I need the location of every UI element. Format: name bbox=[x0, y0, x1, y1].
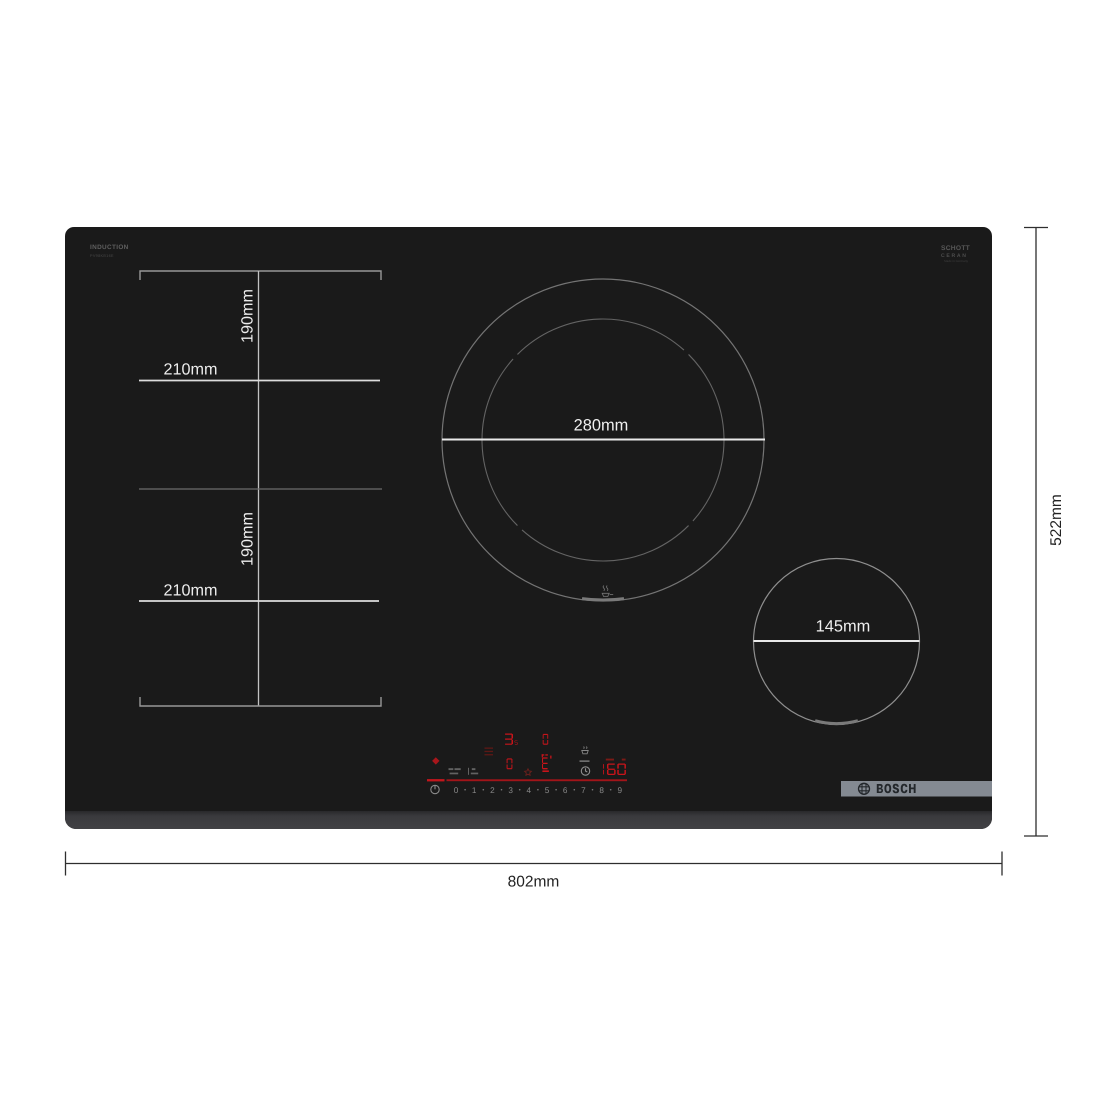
svg-text:522mm: 522mm bbox=[1048, 494, 1065, 546]
svg-text:802mm: 802mm bbox=[508, 874, 560, 891]
